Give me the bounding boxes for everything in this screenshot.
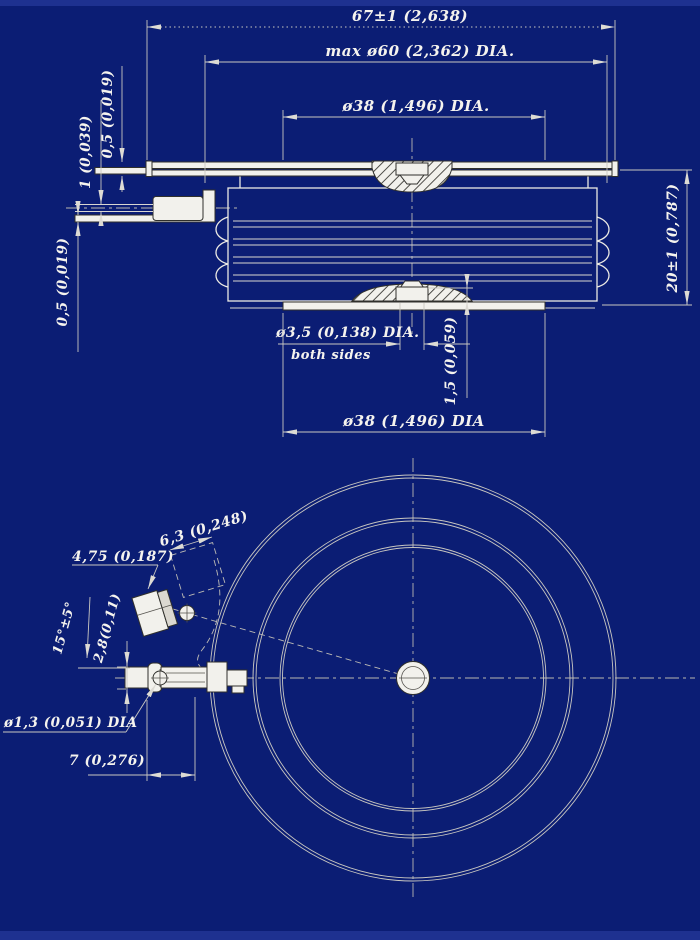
gate-lead-assembly: [75, 190, 215, 222]
bottom-view: 4,75 (0,187) 6,3 (0,248) 15°±5° 2,8(0,11…: [3, 458, 695, 898]
flange-cap-right: [612, 161, 618, 177]
dim-overall-width-label: 67±1 (2,638): [352, 7, 468, 25]
dim-pole-diameter-top: ø38 (1,496) DIA.: [283, 97, 545, 160]
dim-lead-spacing: 7 (0,276): [69, 697, 195, 781]
dim-flange-thickness-label: 0,5 (0,019): [100, 70, 116, 159]
dim-terminal-offset-label: 2,8(0,11): [91, 592, 124, 666]
side-view: 67±1 (2,638) max ø60 (2,362) DIA. ø38 (1…: [55, 7, 692, 437]
dim-housing-width: 6,3 (0,248): [158, 508, 250, 550]
phantom-lead-bend: [198, 560, 220, 670]
dim-pole-diameter-bottom-label: ø38 (1,496) DIA: [342, 412, 485, 430]
scan-edge-bottom: [0, 931, 700, 940]
dim-tab-width: 4,75 (0,187): [72, 549, 174, 589]
cathode-terminal: [125, 662, 247, 693]
dim-hole-diameter: ø1,3 (0,051) DIA: [3, 684, 156, 732]
dim-lead-diameter: 1 (0,039): [78, 100, 101, 226]
gate-hole: [178, 604, 197, 623]
anode-flange-band: [283, 302, 545, 310]
dim-gate-note-label: both sides: [291, 348, 371, 363]
dim-max-diameter-label: max ø60 (2,362) DIA.: [325, 42, 514, 60]
dim-pole-diameter-top-label: ø38 (1,496) DIA.: [341, 97, 489, 115]
dim-lead-spacing-label: 7 (0,276): [69, 753, 145, 769]
dim-lead-diameter-label: 1 (0,039): [78, 115, 94, 189]
dim-terminal-offset: 2,8(0,11): [91, 592, 127, 713]
dim-gate-height-label: 1,5 (0,059): [443, 317, 459, 406]
flange-left-tab: [95, 168, 149, 175]
dim-height-label: 20±1 (0,787): [665, 184, 681, 294]
gate-dome-bottom: [352, 281, 472, 301]
bellows-left: [216, 217, 228, 287]
flange-cap-left: [146, 161, 152, 177]
dim-housing-width-label: 6,3 (0,248): [158, 508, 250, 550]
scan-edge-top: [0, 0, 700, 6]
cathode-flange: [95, 161, 618, 177]
gate-ferrule: [153, 197, 203, 221]
technical-drawing: 67±1 (2,638) max ø60 (2,362) DIA. ø38 (1…: [0, 0, 700, 940]
dim-hole-diameter-label: ø1,3 (0,051) DIA: [3, 715, 137, 731]
gate-contact-top: [396, 163, 428, 175]
ceramic-rib-lines: [233, 221, 592, 281]
dim-strip-thickness: 0,5 (0,019): [55, 203, 78, 352]
dim-tab-width-label: 4,75 (0,187): [72, 549, 174, 565]
bellows-right: [597, 217, 609, 287]
gate-contact-bottom: [396, 287, 428, 301]
dim-gate-diameter-label: ø3,5 (0,138) DIA.: [275, 325, 419, 341]
phantom-housing-square: [171, 543, 226, 598]
dim-height: 20±1 (0,787): [602, 170, 692, 305]
dim-lead-angle-label: 15°±5°: [50, 600, 78, 656]
gate-terminal-angled: [132, 588, 178, 637]
dim-strip-thickness-label: 0,5 (0,019): [55, 238, 71, 327]
center-hub: [397, 662, 430, 695]
dim-gate-diameter: ø3,5 (0,138) DIA. both sides: [275, 303, 470, 363]
